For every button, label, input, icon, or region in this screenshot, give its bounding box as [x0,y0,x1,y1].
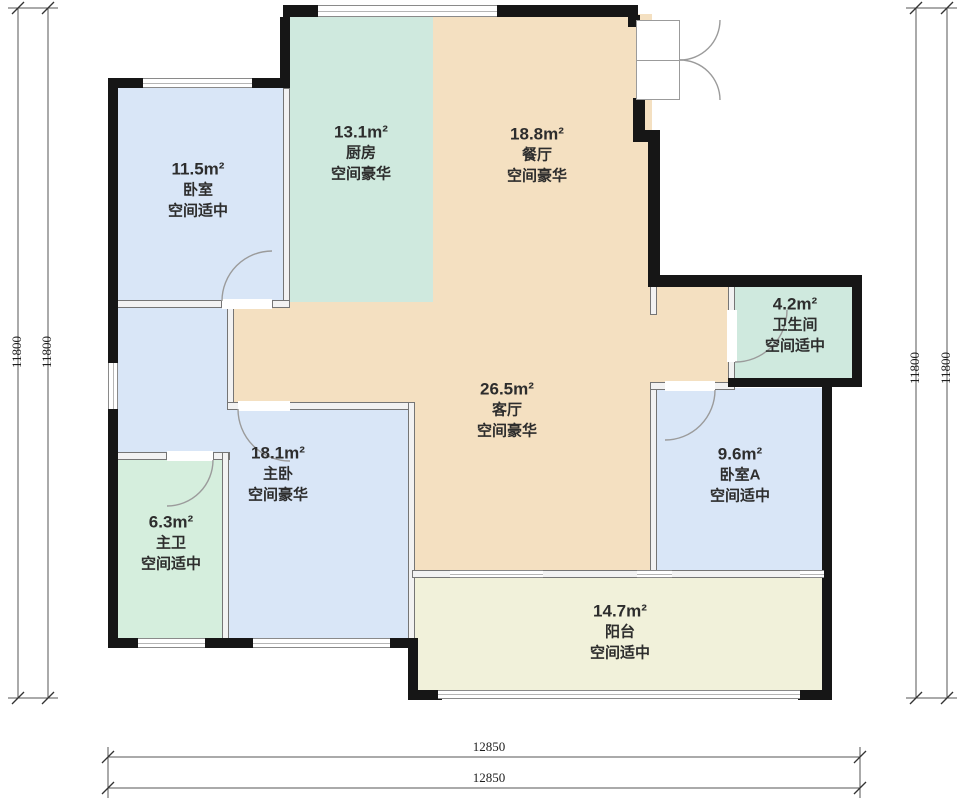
room-fill-master-strip [114,306,232,458]
room-label-bedroom-a: 9.6m² 卧室A 空间适中 [710,444,770,507]
wall-entry-nub-below [633,98,645,132]
room-area: 6.3m² [141,512,201,533]
room-quality: 空间适中 [765,336,825,357]
wall-bathroom-right [852,275,862,385]
room-area: 18.1m² [248,443,308,464]
wall-entry-vertical [648,140,660,277]
room-name: 主卫 [141,533,201,554]
room-label-master-bath: 6.3m² 主卫 空间适中 [141,512,201,575]
dimension-bottom-lower: 12850 [459,770,519,786]
room-area: 18.8m² [507,124,567,145]
door-opening-master-bedroom [238,401,290,411]
wall-step-vertical [408,648,418,695]
room-name: 厨房 [331,143,391,164]
room-area: 26.5m² [477,379,537,400]
window-top-wall [318,5,497,17]
window-master-bath [138,638,205,648]
wall-bathroom-top [648,275,862,287]
wall-bedroom-a-left [650,383,657,575]
dimension-left-inner: 11800 [39,322,55,382]
entry-door-leaf-divider [637,60,679,61]
room-quality: 空间豪华 [507,166,567,187]
room-label-bathroom: 4.2m² 卫生间 空间适中 [765,294,825,357]
wall-bedroom-bottom-right [272,300,290,308]
room-quality: 空间适中 [590,643,650,664]
room-area: 11.5m² [168,159,228,180]
wall-master-bedroom-right [408,402,415,642]
door-opening-bedroom-a [665,381,715,391]
window-balcony-slider-right [800,570,824,578]
window-left-wall [108,363,118,409]
room-name: 卧室 [168,180,228,201]
dimension-right-inner: 11800 [907,338,923,398]
room-quality: 空间豪华 [248,485,308,506]
wall-balcony-corner-left [408,690,442,700]
room-quality: 空间豪华 [477,421,537,442]
wall-master-bath-top-left [114,452,167,460]
wall-kitchen-left-up [280,17,290,81]
wall-bathroom-bottom [728,378,862,387]
entry-door-arc-bottom [680,60,720,100]
wall-kitchen-bedroom-divider [283,88,290,307]
door-opening-master-bath [167,451,213,461]
door-opening-bathroom [727,310,737,362]
room-label-kitchen: 13.1m² 厨房 空间豪华 [331,122,391,185]
room-fill-living-nook [650,287,732,384]
window-balcony-slider-living [450,570,543,578]
room-area: 13.1m² [331,122,391,143]
room-quality: 空间适中 [168,201,228,222]
room-name: 主卧 [248,464,308,485]
window-bedroom-top [143,78,252,88]
room-fill-master-bedroom [226,404,412,642]
room-quality: 空间豪华 [331,164,391,185]
window-balcony-slider-middle [637,570,672,578]
wall-bedroom-bottom-left [114,300,222,308]
room-label-dining: 18.8m² 餐厅 空间豪华 [507,124,567,187]
room-name: 客厅 [477,400,537,421]
room-label-living: 26.5m² 客厅 空间豪华 [477,379,537,442]
room-name: 阳台 [590,622,650,643]
dimension-left-outer: 11800 [9,322,25,382]
room-fill-dining-living [433,14,652,574]
room-label-bedroom: 11.5m² 卧室 空间适中 [168,159,228,222]
room-area: 4.2m² [765,294,825,315]
room-quality: 空间适中 [141,554,201,575]
room-label-balcony: 14.7m² 阳台 空间适中 [590,601,650,664]
wall-master-bath-right [222,452,229,642]
dimension-bottom-upper: 12850 [459,739,519,755]
room-name: 卫生间 [765,315,825,336]
wall-dining-nub [650,285,657,315]
entry-door [636,20,680,100]
room-quality: 空间适中 [710,486,770,507]
floor-plan-canvas: 11.5m² 卧室 空间适中 13.1m² 厨房 空间豪华 18.8m² 餐厅 … [0,0,962,800]
room-fill-corridor [230,302,435,406]
room-name: 餐厅 [507,145,567,166]
wall-right [822,385,832,700]
wall-corridor-vertical [227,300,234,406]
room-fill-living-left [412,406,437,574]
room-area: 9.6m² [710,444,770,465]
window-master-bedroom [253,638,390,648]
door-opening-bedroom [222,299,272,309]
room-label-master-bedroom: 18.1m² 主卧 空间豪华 [248,443,308,506]
dimension-right-outer: 11800 [938,338,954,398]
window-balcony-railing [438,690,800,699]
room-area: 14.7m² [590,601,650,622]
entry-door-arc-top [680,20,720,60]
room-name: 卧室A [710,465,770,486]
